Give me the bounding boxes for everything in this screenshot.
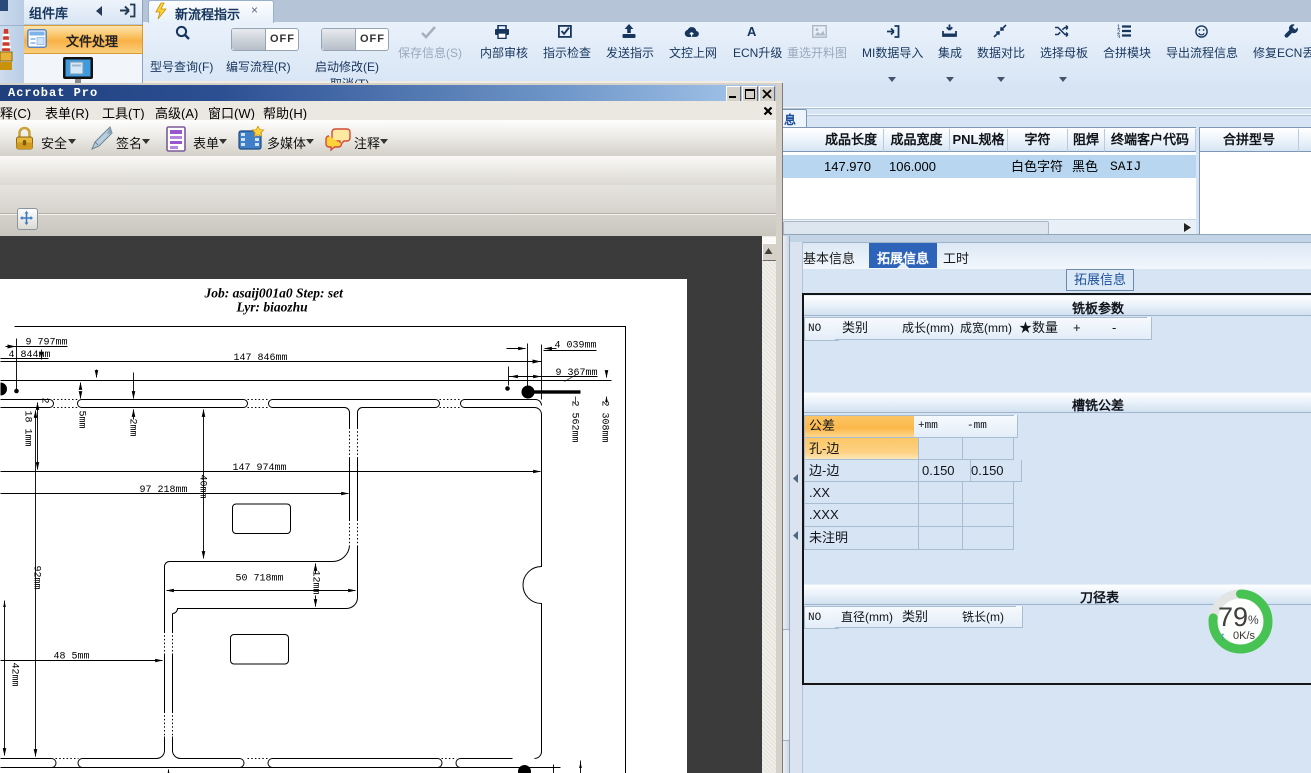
svg-text:147 846mm: 147 846mm	[234, 353, 288, 364]
svg-text:40mm: 40mm	[197, 475, 208, 499]
svg-text:50 718mm: 50 718mm	[236, 574, 284, 585]
svg-text:2 308mm: 2 308mm	[599, 401, 610, 443]
svg-text:2: 2	[39, 398, 50, 404]
svg-text:3: 3	[1117, 35, 1121, 38]
svg-text:4 844mm: 4 844mm	[9, 350, 51, 361]
svg-text:5mm: 5mm	[76, 411, 87, 429]
svg-text:79: 79	[1218, 602, 1248, 632]
svg-text:97 218mm: 97 218mm	[140, 485, 188, 496]
svg-text:↑: ↑	[1220, 629, 1226, 643]
svg-text:Lyr: biaozhu: Lyr: biaozhu	[236, 300, 309, 315]
svg-text:18 1mm: 18 1mm	[22, 411, 33, 447]
svg-text:4 039mm: 4 039mm	[555, 341, 597, 352]
svg-text:2 562mm: 2 562mm	[569, 401, 580, 443]
svg-text:Job: asaij001a0 Step: set: Job: asaij001a0 Step: set	[204, 286, 345, 301]
svg-text:147 974mm: 147 974mm	[233, 463, 287, 474]
svg-text:0K/s: 0K/s	[1233, 630, 1256, 642]
svg-text:%: %	[1248, 613, 1259, 627]
svg-text:9 367mm: 9 367mm	[556, 368, 598, 379]
svg-text:92mm: 92mm	[31, 566, 42, 590]
svg-text:2mm: 2mm	[127, 419, 138, 437]
svg-text:42mm: 42mm	[9, 663, 20, 687]
